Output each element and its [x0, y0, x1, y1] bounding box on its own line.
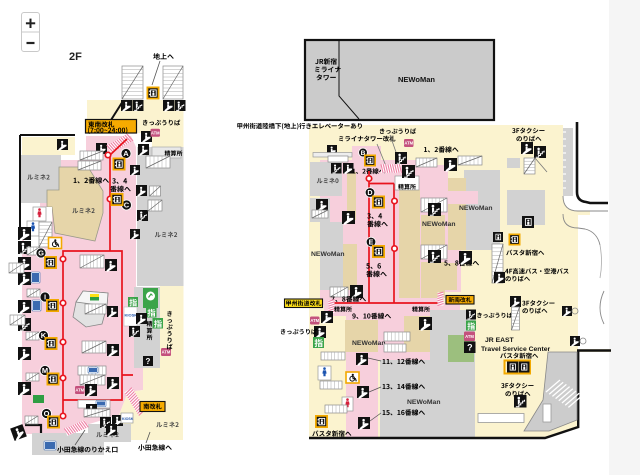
svg-text:C: C	[124, 201, 130, 210]
svg-text:ATM: ATM	[75, 388, 84, 393]
svg-text:KIOSK: KIOSK	[125, 313, 138, 318]
svg-text:NEWoMan: NEWoMan	[398, 75, 435, 84]
svg-text:ATM: ATM	[310, 318, 319, 323]
svg-text:2F: 2F	[69, 51, 82, 63]
svg-text:D: D	[367, 188, 372, 197]
svg-text:JR EAST: JR EAST	[485, 337, 515, 344]
svg-text:ATM: ATM	[465, 334, 474, 339]
svg-text:NEWoMan: NEWoMan	[422, 221, 455, 228]
svg-text:I: I	[44, 293, 46, 302]
svg-text:ATM: ATM	[151, 130, 160, 135]
svg-text:Travel Service Center: Travel Service Center	[481, 346, 550, 353]
svg-text:?: ?	[146, 357, 151, 366]
svg-text:ATM: ATM	[162, 350, 171, 355]
svg-text:?: ?	[467, 343, 473, 353]
svg-text:NEWoMan: NEWoMan	[352, 340, 385, 347]
svg-text:NEWoMan: NEWoMan	[311, 251, 344, 258]
svg-text:G: G	[38, 249, 44, 258]
svg-text:NEWoMan: NEWoMan	[407, 399, 440, 406]
svg-text:A: A	[123, 149, 129, 158]
svg-text:ATM: ATM	[404, 141, 413, 146]
svg-text:KIOSK: KIOSK	[122, 417, 134, 421]
svg-text:NEWoMan: NEWoMan	[459, 205, 492, 212]
